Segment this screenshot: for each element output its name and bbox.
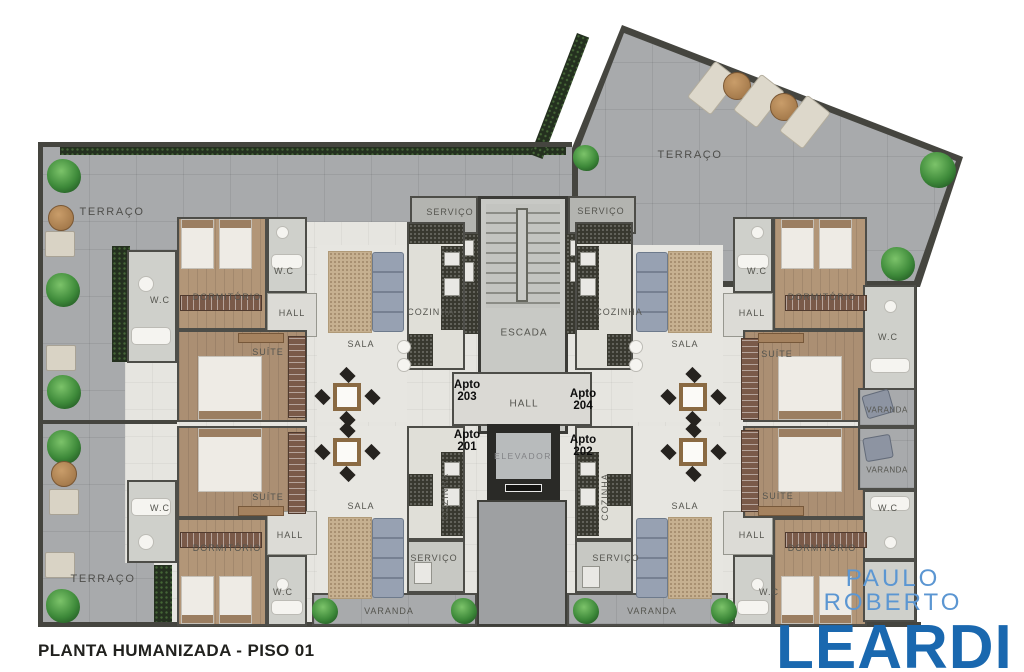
sink-204	[580, 252, 596, 266]
wardrobe-suite-204	[741, 338, 759, 420]
label-escada: ESCADA	[500, 328, 547, 339]
label-varanda-201: VARANDA	[364, 606, 414, 616]
tv-unit-suite-201	[238, 506, 284, 516]
island-cozinha-204	[607, 334, 631, 366]
label-cozinha-204: COZINHA	[595, 307, 643, 317]
brand-name-top: PAULO ROBERTO	[776, 567, 1010, 615]
label-apto-202: Apto202	[570, 434, 596, 458]
island-cozinha-201	[409, 474, 433, 506]
wall-top	[38, 142, 572, 147]
rug-sala-203	[328, 251, 372, 333]
label-wc-left-201: W.C	[150, 503, 170, 513]
island-cozinha-203	[409, 334, 433, 366]
label-apto-203: Apto203	[454, 379, 480, 403]
sink-203	[444, 252, 460, 266]
dining-table-202	[679, 438, 707, 466]
label-suite-203: SUÍTE	[252, 347, 284, 357]
stove-202	[580, 488, 596, 506]
basin-wc-right-202	[884, 536, 897, 549]
round-table	[51, 461, 77, 487]
hedge-bottom-left	[154, 565, 172, 625]
basin-wc-inner-204	[751, 226, 764, 239]
bed-single-203-b	[219, 219, 252, 269]
island-cozinha-202	[607, 474, 631, 506]
elevator-sill	[505, 484, 542, 492]
plant	[881, 247, 915, 281]
floor-plan: TERRAÇO TERRAÇO TERRAÇO SERVIÇO SERVIÇO …	[0, 0, 1024, 672]
bed-single-201-a	[181, 576, 214, 624]
label-varanda-right-202: VARANDA	[866, 466, 908, 475]
label-apto-201: Apto201	[454, 429, 480, 453]
label-hall-203: HALL	[279, 308, 306, 318]
plant	[711, 598, 737, 624]
stove-204	[580, 278, 596, 296]
counter-cozinha-204-top	[577, 224, 631, 244]
rug-sala-202	[668, 517, 712, 599]
plant	[46, 273, 80, 307]
bed-double-suite-204	[778, 356, 842, 420]
terrace-chair	[46, 345, 76, 371]
sofa-204	[636, 252, 668, 332]
dining-table-203	[333, 383, 361, 411]
counter-cozinha-203-top	[409, 224, 463, 244]
label-sala-201: SALA	[347, 501, 374, 511]
tv-unit-suite-203	[238, 333, 284, 343]
washer-201	[414, 562, 432, 584]
wardrobe-suite-201	[288, 432, 306, 514]
label-dormitorio-201: DORMITÓRIO	[193, 543, 262, 553]
service-shaft	[477, 500, 567, 626]
rug-sala-204	[668, 251, 712, 333]
bed-single-204-a	[781, 219, 814, 269]
label-hall-central: HALL	[509, 399, 538, 410]
label-sala-203: SALA	[347, 339, 374, 349]
label-wc-left-203: W.C	[150, 295, 170, 305]
sink-202	[580, 462, 596, 476]
terrace-chair	[49, 489, 79, 515]
round-table	[48, 205, 74, 231]
sofa-203	[372, 252, 404, 332]
wardrobe-suite-202	[741, 430, 759, 512]
bed-single-204-b	[819, 219, 852, 269]
basin-wc-inner-203	[276, 226, 289, 239]
wall-terrace-divider	[42, 420, 177, 424]
plant	[920, 152, 956, 188]
room-wc-left-201	[127, 480, 177, 563]
dining-table-204	[679, 383, 707, 411]
tv-unit-suite-202	[758, 506, 804, 516]
plant	[47, 375, 81, 409]
basin-wc-right-204	[884, 300, 897, 313]
stool-204-b	[629, 358, 643, 372]
plant	[573, 145, 599, 171]
bed-single-203-a	[181, 219, 214, 269]
bed-single-201-b	[219, 576, 252, 624]
label-elevador: ELEVADOR	[494, 451, 552, 461]
label-hall-202: HALL	[739, 530, 766, 540]
label-hall-201: HALL	[277, 530, 304, 540]
sofa-201	[372, 518, 404, 598]
brand-name-bottom: LEARDI	[776, 617, 1010, 672]
label-sala-202: SALA	[671, 501, 698, 511]
label-wc-inner-204: W.C	[747, 266, 767, 276]
stool-203-a	[397, 340, 411, 354]
label-sala-204: SALA	[671, 339, 698, 349]
stool-203-b	[397, 358, 411, 372]
label-hall-204: HALL	[739, 308, 766, 318]
bed-double-suite-201	[198, 428, 262, 492]
label-cozinha-202: COZINHA	[600, 473, 610, 521]
bed-double-suite-203	[198, 356, 262, 420]
label-servico-201: SERVIÇO	[410, 553, 457, 563]
label-cozinha-201: COZINHA	[440, 473, 450, 521]
washer-202	[582, 566, 600, 588]
wall-left	[38, 142, 43, 627]
plant	[312, 598, 338, 624]
label-suite-204: SUÍTE	[761, 349, 793, 359]
bed-double-suite-202	[778, 428, 842, 492]
basin-wc-left-201	[138, 534, 154, 550]
label-wc-inner-201: W.C	[273, 587, 293, 597]
label-terraco-bottom-left: TERRAÇO	[71, 573, 136, 585]
terrace-chair	[45, 231, 75, 257]
brand-logo: PAULO ROBERTO LEARDI	[776, 567, 1010, 672]
label-servico-core-right: SERVIÇO	[577, 206, 624, 216]
label-terraco-top-right: TERRAÇO	[658, 149, 723, 161]
label-suite-202: SUÍTE	[762, 491, 794, 501]
plant	[47, 159, 81, 193]
label-dormitorio-204: DORMITÓRIO	[788, 292, 857, 302]
rug-sala-201	[328, 517, 372, 599]
basin-wc-left-203	[138, 276, 154, 292]
tv-unit-suite-204	[758, 333, 804, 343]
stairs-rail	[516, 208, 528, 302]
label-varanda-right-204: VARANDA	[866, 406, 908, 415]
label-dormitorio-202: DORMITÓRIO	[788, 543, 857, 553]
tub-wc-right-204	[870, 358, 910, 373]
tub-wc-inner-202	[737, 600, 769, 615]
dining-table-201	[333, 438, 361, 466]
label-suite-201: SUÍTE	[252, 492, 284, 502]
label-apto-204: Apto204	[570, 388, 596, 412]
tub-wc-left-203	[131, 327, 171, 345]
armchair-varanda-202	[862, 434, 894, 462]
plant	[451, 598, 477, 624]
label-wc-inner-203: W.C	[274, 266, 294, 276]
tub-wc-inner-201	[271, 600, 303, 615]
label-varanda-202: VARANDA	[627, 606, 677, 616]
label-wc-right-204: W.C	[878, 332, 898, 342]
plant	[46, 589, 80, 623]
wardrobe-suite-203	[288, 336, 306, 418]
plan-caption: PLANTA HUMANIZADA - PISO 01	[38, 641, 315, 661]
stool-204-a	[629, 340, 643, 354]
label-wc-right-202: W.C	[878, 503, 898, 513]
plant	[47, 430, 81, 464]
room-wc-left-203	[127, 250, 177, 363]
label-servico-202: SERVIÇO	[592, 553, 639, 563]
label-servico-core-left: SERVIÇO	[426, 207, 473, 217]
hedge-top	[60, 147, 566, 155]
label-cozinha-203: COZINHA	[407, 307, 455, 317]
label-dormitorio-203: DORMITÓRIO	[193, 292, 262, 302]
sofa-202	[636, 518, 668, 598]
label-terraco-top-left: TERRAÇO	[80, 206, 145, 218]
stove-203	[444, 278, 460, 296]
plant	[573, 598, 599, 624]
